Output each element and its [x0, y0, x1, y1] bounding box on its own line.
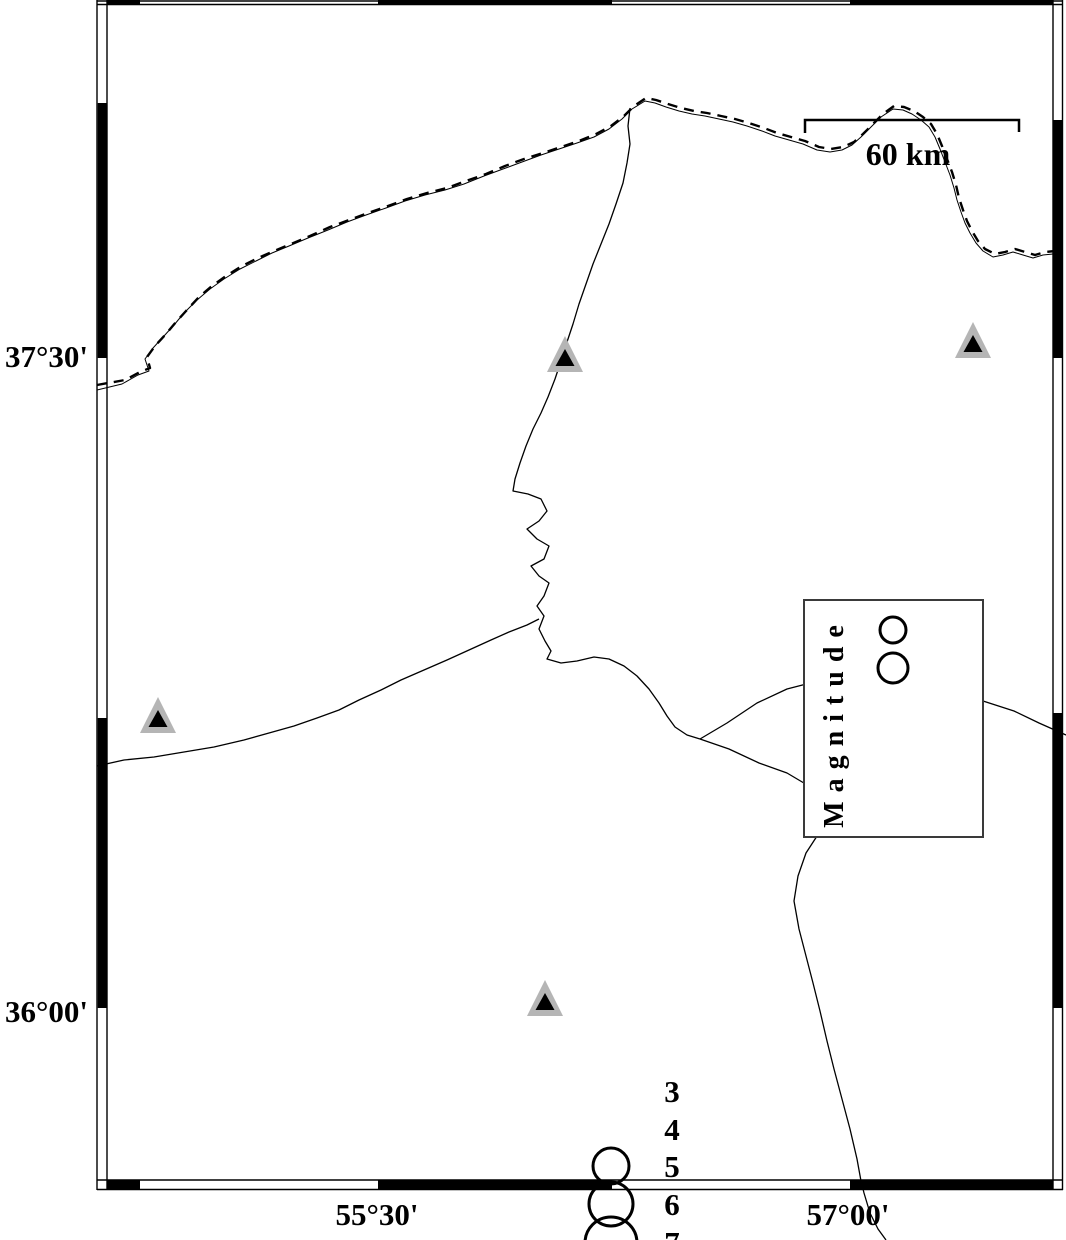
- magnitude-scale-number: 7: [664, 1225, 680, 1240]
- scale-bar: 60 km: [805, 120, 1019, 172]
- magnitude-scale-number: 3: [664, 1074, 680, 1109]
- station-triangle-marker: [955, 322, 991, 358]
- lon-label-5700: 57°00': [806, 1197, 889, 1232]
- frame-top-band-segment: [107, 0, 140, 5]
- frame-top-band-segment: [378, 0, 612, 5]
- lat-label-3600: 36°00': [5, 994, 88, 1029]
- magnitude-scale: 34567: [585, 1074, 680, 1240]
- inland-border-west: [97, 619, 539, 766]
- scale-bar-bracket: [805, 120, 1019, 133]
- magnitude-scale-number: 5: [664, 1149, 680, 1184]
- seismicity-map: 60 km Magnitude 34567 37°30' 36°00' 55°3…: [0, 0, 1066, 1240]
- frame-left-band-segment: [98, 103, 107, 358]
- magnitude-scale-number: 6: [664, 1187, 680, 1222]
- magnitude-scale-circle: [585, 1217, 637, 1240]
- magnitude-legend: Magnitude: [804, 600, 983, 837]
- inland-border-central: [513, 108, 700, 739]
- frame-bottom-band-segment: [107, 1181, 140, 1190]
- station-triangle-marker: [547, 336, 583, 372]
- frame-right-band-segment: [1054, 120, 1063, 358]
- frame-right-band-segment: [1054, 713, 1063, 1008]
- map-frame: [97, 0, 1063, 1190]
- scale-bar-label: 60 km: [866, 136, 951, 172]
- frame-top-band-segment: [850, 0, 1053, 5]
- magnitude-scale-circle: [593, 1148, 629, 1184]
- station-triangle-marker: [527, 980, 563, 1016]
- axis-annotations: 37°30' 36°00' 55°30' 57°00': [5, 339, 890, 1232]
- frame-bottom-band-segment: [378, 1181, 612, 1190]
- magnitude-scale-number: 4: [664, 1112, 680, 1147]
- legend-title: Magnitude: [819, 616, 850, 828]
- frame-left-band-segment: [98, 718, 107, 1008]
- station-triangle-marker: [140, 697, 176, 733]
- lat-label-3730: 37°30': [5, 339, 88, 374]
- frame-bottom-band-segment: [850, 1181, 1053, 1190]
- lon-label-5530: 55°30': [335, 1197, 418, 1232]
